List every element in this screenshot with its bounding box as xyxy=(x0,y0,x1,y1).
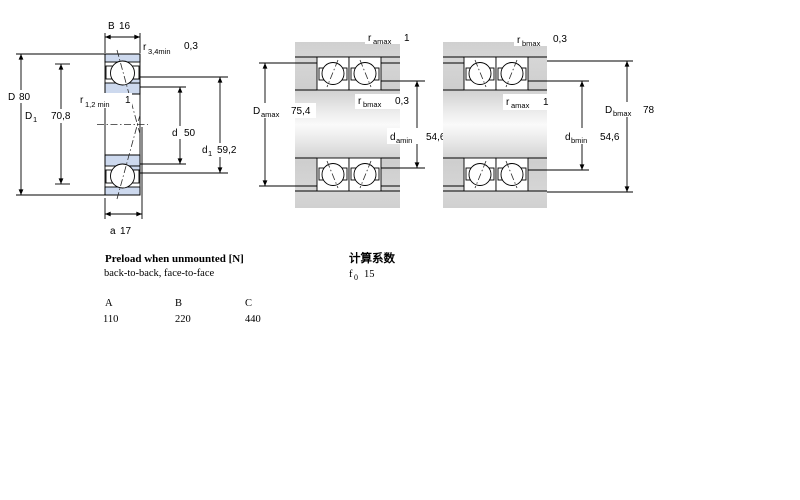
dim-label-dbmin: d bmin 54,6 xyxy=(562,128,624,145)
preload-value-B: 220 xyxy=(175,314,191,325)
dim-label-B: B 16 xyxy=(108,21,131,32)
dim-base: a xyxy=(110,226,116,237)
ball xyxy=(322,164,344,186)
dim-value: 1 xyxy=(125,95,131,106)
calculation-title: 计算系数 xyxy=(349,251,395,265)
dim-base: d xyxy=(202,145,208,156)
ball xyxy=(111,164,135,188)
dim-sub: bmin xyxy=(571,136,587,145)
ball xyxy=(354,164,376,186)
dim-label-d1: d 1 59,2 xyxy=(199,143,243,158)
dim-label-rbmax: r bmax 0,3 xyxy=(355,94,413,109)
dim-sub: amin xyxy=(396,136,412,145)
dim-value: 0,3 xyxy=(395,96,409,107)
preload-value-A: 110 xyxy=(103,314,118,325)
dim-value: 75,4 xyxy=(291,106,311,117)
dim-value: 80 xyxy=(19,92,31,103)
dim-base: D xyxy=(253,106,260,117)
dim-value: 16 xyxy=(119,21,131,32)
dim-base: D xyxy=(8,92,15,103)
f0-value: 15 xyxy=(364,269,375,280)
bearing-box xyxy=(496,158,528,191)
bearing-dimension-drawing: B 16 r 3,4min 0,3 D 80 D 1 70,8 r 1,2 mi… xyxy=(0,0,800,500)
dim-value: 1 xyxy=(543,97,549,108)
f0-sub: 0 xyxy=(354,273,358,282)
dim-label-a: a 17 xyxy=(110,226,132,237)
preload-value-C: 440 xyxy=(245,314,261,325)
dim-label-damin: d amin 54,6 xyxy=(387,128,448,145)
dim-label-D: D 80 xyxy=(5,90,35,103)
dim-value: 1 xyxy=(404,33,410,44)
dim-value: 17 xyxy=(120,226,132,237)
ball xyxy=(501,164,523,186)
dim-base: d xyxy=(565,132,571,143)
dim-sub: bmax xyxy=(363,100,382,109)
dim-value: 78 xyxy=(643,105,655,116)
dim-base: D xyxy=(605,105,612,116)
dim-base: d xyxy=(390,132,396,143)
dim-sub: amax xyxy=(373,37,392,46)
preload-col-A-header: A xyxy=(105,298,113,309)
bearing-box xyxy=(496,57,528,90)
bearing-box xyxy=(317,57,349,90)
dim-label-ramax: r amax 1 xyxy=(365,30,412,46)
dim-sub: bmax xyxy=(522,39,541,48)
dim-value: 59,2 xyxy=(217,145,237,156)
dim-sub: amax xyxy=(511,101,530,110)
dim-value: 54,6 xyxy=(426,132,446,143)
dim-base: D xyxy=(25,111,32,122)
dim-sub: bmax xyxy=(613,109,632,118)
ball xyxy=(354,63,376,85)
dim-value: 0,3 xyxy=(553,34,567,45)
ball xyxy=(469,164,491,186)
preload-col-B-header: B xyxy=(175,298,182,309)
bearing-catalog-figure-page: B 16 r 3,4min 0,3 D 80 D 1 70,8 r 1,2 mi… xyxy=(0,0,800,500)
bearing-box xyxy=(464,57,496,90)
preload-subtitle: back-to-back, face-to-face xyxy=(104,268,215,279)
ball xyxy=(501,63,523,85)
dim-sub: amax xyxy=(261,110,280,119)
preload-title: Preload when unmounted [N] xyxy=(105,253,244,265)
dim-label-ramax: r amax 1 xyxy=(503,94,550,110)
bearing-top-section xyxy=(105,54,140,94)
dim-value: 0,3 xyxy=(184,41,198,52)
dim-base: d xyxy=(172,128,178,139)
dim-sub: 1 xyxy=(33,115,37,124)
dim-label-d: d 50 xyxy=(168,126,202,139)
bearing-box xyxy=(349,57,381,90)
bearing-bottom-section xyxy=(105,155,140,195)
bearing-box xyxy=(317,158,349,191)
dim-label-Damax: D amax 75,4 xyxy=(249,103,316,119)
bearing-box xyxy=(349,158,381,191)
preload-col-C-header: C xyxy=(245,298,252,309)
dim-label-r12: r 1,2 min 1 xyxy=(78,93,132,109)
f0-base: f xyxy=(349,269,353,280)
dim-value: 70,8 xyxy=(51,111,71,122)
dim-label-D1: D 1 70,8 xyxy=(22,109,79,124)
bearing-box xyxy=(464,158,496,191)
dim-sub: 1,2 min xyxy=(85,100,110,109)
dim-label-Dbmax: D bmax 78 xyxy=(601,102,660,118)
dim-sub: 3,4min xyxy=(148,47,171,56)
ball xyxy=(111,61,135,85)
ball xyxy=(322,63,344,85)
dim-label-rbmax: r bmax 0,3 xyxy=(514,32,574,48)
dim-base: B xyxy=(108,21,115,32)
dim-sub: 1 xyxy=(208,149,212,158)
dim-value: 50 xyxy=(184,128,196,139)
ball xyxy=(469,63,491,85)
dim-value: 54,6 xyxy=(600,132,620,143)
